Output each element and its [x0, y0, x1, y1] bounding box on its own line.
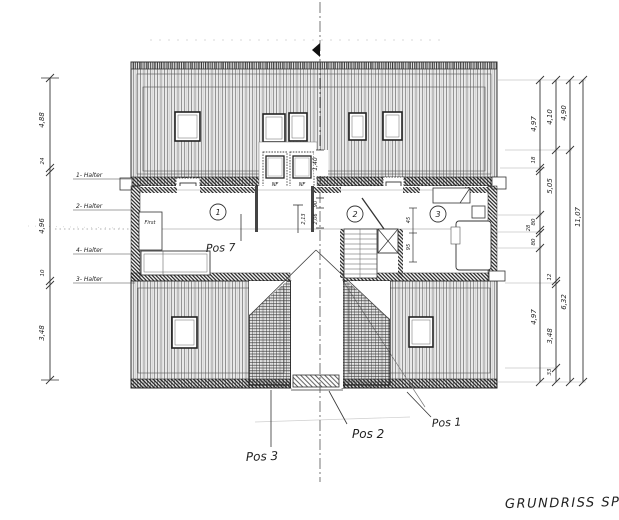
room-number: 2	[352, 210, 357, 219]
section-marker-icon	[312, 43, 320, 57]
dim-value: 1,40	[312, 157, 319, 171]
ridge-label-box: First	[139, 212, 162, 250]
shaft-box	[378, 229, 398, 253]
right-dimension-chains: 4,97 18 80 28 80 4,97 4,10 5,05 12 3,48 …	[492, 76, 587, 386]
dim-value: 10	[40, 269, 46, 276]
bed-room3	[451, 221, 491, 270]
dim-value: 3,48	[38, 325, 46, 341]
dim-value: 33	[547, 368, 553, 375]
dim-value: 2,06	[313, 213, 319, 224]
dim-value: 4,97	[530, 309, 538, 325]
dim-value: 4,10	[546, 109, 554, 125]
note-label: 2- Halter	[76, 203, 103, 210]
skylight	[175, 112, 200, 141]
dim-value: 90	[313, 201, 319, 207]
dim-value: 4,90	[560, 105, 568, 121]
valley-sill	[293, 375, 339, 387]
interior-floor: First	[55, 186, 497, 281]
dim-value: 18	[531, 156, 537, 163]
dim-value: 4,97	[530, 116, 538, 132]
bed-room1	[141, 251, 210, 275]
dim-value: 24	[40, 157, 46, 164]
pos2-label: Pos 2	[352, 427, 384, 441]
chimney-block-left	[249, 281, 291, 385]
skylight	[289, 113, 307, 141]
pos3-label: Pos 3	[246, 449, 279, 464]
ridge-comb-band	[131, 62, 497, 69]
skylight	[409, 317, 433, 347]
dim-value: 6,32	[560, 294, 568, 310]
dim-value: 2,13	[301, 213, 307, 224]
dim-value: 4,96	[38, 218, 46, 234]
note-label: 4- Halter	[76, 247, 103, 254]
skylight	[383, 112, 402, 140]
side-table	[472, 206, 485, 218]
partition-wall	[255, 186, 258, 232]
drawing-title: GRUNDRISS SP	[505, 495, 619, 512]
floor-plan-drawing: DF N NF N NF N DF N	[0, 0, 619, 520]
stair-wall	[398, 229, 403, 278]
dim-value: 5,05	[546, 178, 554, 194]
eave-tab-left	[120, 178, 132, 190]
dim-value: 45	[406, 217, 412, 223]
skylight	[349, 113, 366, 140]
pos1-label: Pos 1	[431, 415, 461, 430]
dim-value: 95	[406, 244, 412, 250]
dim-value: 80	[531, 218, 537, 225]
dim-value: 4,88	[38, 112, 46, 128]
stair-wall	[340, 229, 344, 278]
dim-value-total: 11,07	[574, 206, 582, 227]
pos7-label: Pos 7	[206, 241, 236, 255]
dim-value: 80	[531, 238, 537, 245]
dim-value: 12	[547, 273, 553, 280]
scanned-floor-plan-page: DF N NF N NF N DF N	[0, 0, 619, 520]
chimney-block-right	[343, 281, 390, 385]
dim-value: 28	[526, 225, 532, 231]
note-label: 1- Halter	[76, 172, 103, 179]
ridge-label: First	[145, 220, 157, 226]
note-label: 3- Halter	[76, 276, 103, 283]
room-number: 3	[435, 210, 440, 219]
eave-tab-lower-right	[489, 271, 505, 281]
staircase	[344, 229, 377, 278]
room-number: 1	[215, 208, 220, 217]
desk-room3	[433, 188, 470, 203]
skylight	[263, 114, 285, 142]
dim-value: 3,48	[546, 328, 554, 344]
skylight	[172, 317, 197, 348]
